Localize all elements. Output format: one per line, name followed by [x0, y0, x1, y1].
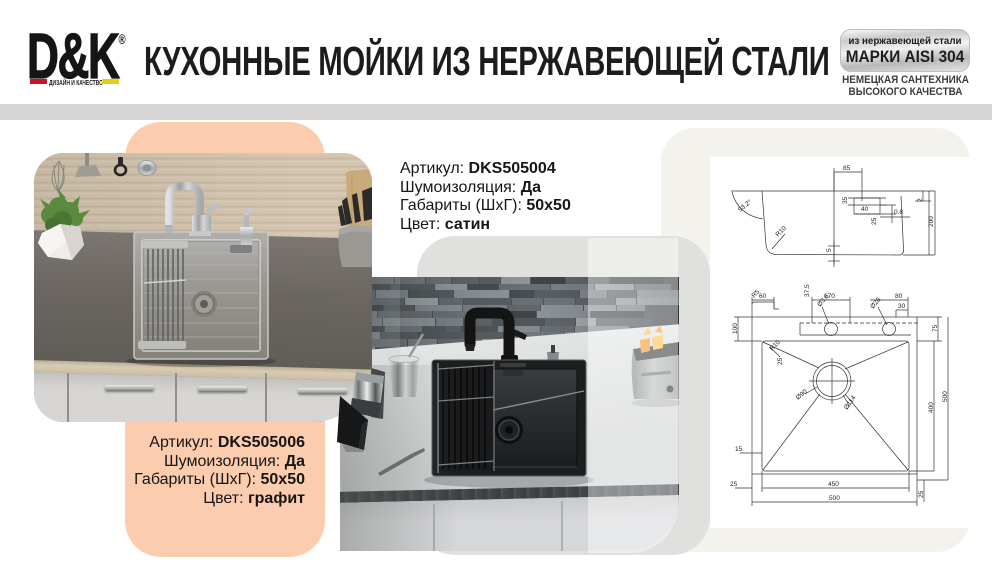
svg-text:85: 85 — [843, 165, 851, 172]
svg-text:37.5: 37.5 — [804, 284, 811, 297]
svg-text:25: 25 — [871, 217, 878, 225]
svg-text:25: 25 — [730, 481, 738, 488]
svg-text:5: 5 — [826, 248, 833, 252]
svg-text:40: 40 — [861, 206, 869, 213]
svg-text:R10: R10 — [774, 225, 788, 239]
svg-text:0.8: 0.8 — [894, 209, 903, 216]
svg-text:25: 25 — [918, 490, 925, 498]
svg-text:Ø90: Ø90 — [795, 388, 809, 402]
svg-text:200: 200 — [928, 216, 935, 227]
svg-text:30: 30 — [898, 303, 906, 310]
svg-text:Ø28: Ø28 — [869, 296, 883, 310]
svg-text:75: 75 — [932, 324, 939, 332]
svg-text:2: 2 — [917, 198, 924, 202]
svg-text:500: 500 — [942, 391, 949, 402]
svg-text:60: 60 — [759, 293, 767, 300]
svg-text:400: 400 — [928, 402, 935, 413]
svg-text:450: 450 — [828, 481, 839, 488]
svg-text:500: 500 — [829, 495, 840, 502]
svg-text:35: 35 — [842, 196, 849, 204]
svg-text:Ø114: Ø114 — [843, 394, 858, 411]
svg-text:93.2°: 93.2° — [736, 198, 753, 214]
svg-text:25: 25 — [777, 357, 784, 365]
svg-text:15: 15 — [735, 446, 743, 453]
svg-text:80: 80 — [895, 293, 903, 300]
svg-text:100: 100 — [732, 323, 739, 334]
svg-text:170: 170 — [824, 293, 835, 300]
